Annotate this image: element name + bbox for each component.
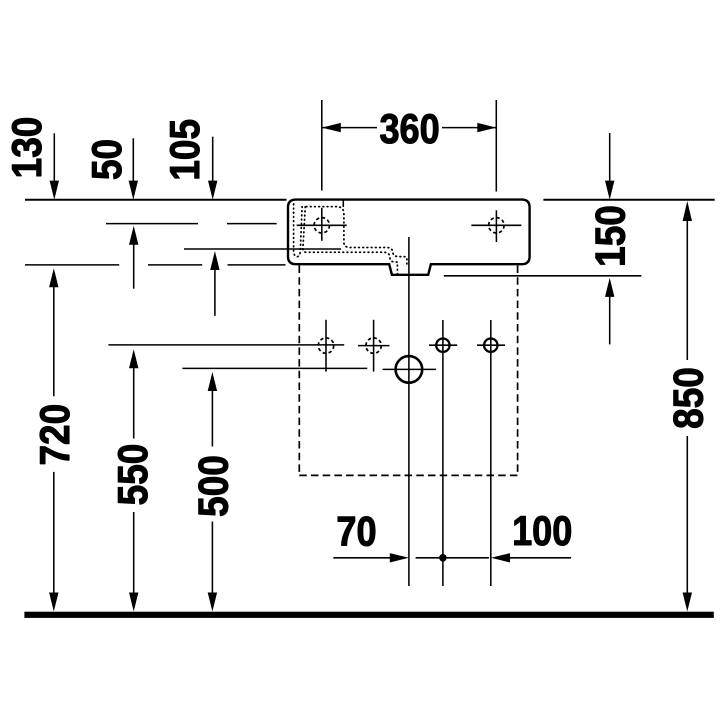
svg-text:105: 105	[162, 119, 209, 181]
svg-text:500: 500	[191, 455, 238, 517]
svg-text:130: 130	[4, 117, 51, 179]
svg-text:850: 850	[665, 367, 712, 429]
svg-text:550: 550	[110, 444, 157, 506]
svg-text:720: 720	[32, 404, 79, 466]
svg-text:360: 360	[379, 106, 439, 152]
svg-text:100: 100	[512, 509, 572, 555]
svg-text:50: 50	[84, 139, 131, 180]
svg-text:70: 70	[336, 509, 376, 555]
svg-text:150: 150	[588, 205, 635, 267]
